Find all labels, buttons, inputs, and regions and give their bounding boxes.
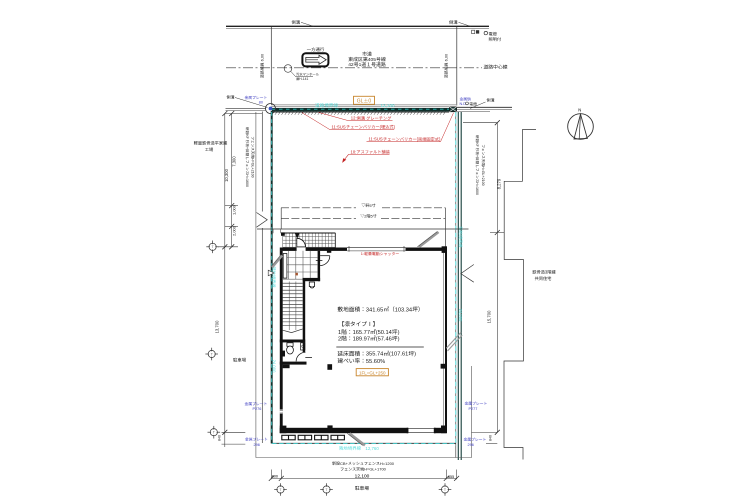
svg-text:405: 405 xyxy=(368,57,376,63)
svg-text:): ) xyxy=(398,330,400,336)
svg-text:1: 1 xyxy=(359,62,362,68)
svg-text:H=1200: H=1200 xyxy=(380,461,395,466)
svg-text:2,000: 2,000 xyxy=(231,225,236,236)
svg-text:T: T xyxy=(444,488,446,492)
svg-text:1:: 1: xyxy=(361,251,364,256)
svg-text:1,000: 1,000 xyxy=(231,204,236,215)
svg-text:T: T xyxy=(212,245,214,249)
svg-text:10:: 10: xyxy=(351,149,357,154)
svg-text:T: T xyxy=(211,352,213,356)
svg-text:T: T xyxy=(213,431,215,435)
svg-text:T: T xyxy=(326,488,328,492)
svg-text:+: + xyxy=(475,155,479,157)
svg-text:H=GL+2100: H=GL+2100 xyxy=(251,158,255,178)
svg-text:N.D: N.D xyxy=(460,102,467,106)
svg-text:42: 42 xyxy=(348,62,354,68)
svg-text:12,100: 12,100 xyxy=(355,474,370,480)
svg-text:): ) xyxy=(398,337,400,343)
svg-text:10,300: 10,300 xyxy=(224,168,229,181)
svg-text:): ) xyxy=(414,352,416,358)
svg-text:(57.46: (57.46 xyxy=(376,337,392,343)
svg-text:1: 1 xyxy=(338,330,341,336)
svg-text:13,700: 13,700 xyxy=(214,320,219,333)
svg-text:6,00: 6,00 xyxy=(260,53,265,62)
svg-text:H=GL+2100: H=GL+2100 xyxy=(481,166,485,186)
svg-text:296: 296 xyxy=(468,443,474,447)
svg-text:55.60%: 55.60% xyxy=(366,359,385,365)
svg-text:H=1600: H=1600 xyxy=(475,182,479,195)
svg-text:12,100: 12,100 xyxy=(381,103,395,108)
svg-text:296: 296 xyxy=(254,443,260,447)
svg-text:341.65: 341.65 xyxy=(366,307,383,313)
svg-text:P276: P276 xyxy=(253,407,262,411)
svg-text:840: 840 xyxy=(218,435,222,441)
svg-text:+: + xyxy=(245,147,249,149)
svg-text:2: 2 xyxy=(338,337,341,343)
svg-text:8,279: 8,279 xyxy=(497,178,502,189)
svg-text:H=1600: H=1600 xyxy=(245,174,249,187)
svg-text:H=GL+1700: H=GL+1700 xyxy=(364,467,387,472)
svg-text:15,700: 15,700 xyxy=(487,310,492,323)
svg-text:855: 855 xyxy=(448,475,454,479)
svg-text:CB+: CB+ xyxy=(340,461,349,466)
svg-text:840: 840 xyxy=(489,435,493,441)
svg-text:GL: GL xyxy=(357,99,364,105)
svg-text:12:: 12: xyxy=(351,116,357,121)
svg-text:KF: KF xyxy=(475,142,479,148)
svg-text:24,000: 24,000 xyxy=(271,360,276,373)
svg-text:(107.61: (107.61 xyxy=(389,352,408,358)
svg-text:7,300: 7,300 xyxy=(231,156,236,167)
svg-text:24,000: 24,000 xyxy=(458,309,463,322)
svg-text:P277: P277 xyxy=(469,407,478,411)
svg-text:12,760: 12,760 xyxy=(365,446,379,451)
svg-text:0: 0 xyxy=(368,99,371,105)
svg-text:T: T xyxy=(280,488,282,492)
svg-text:11:SUS: 11:SUS xyxy=(332,124,346,129)
svg-text:11:SUS: 11:SUS xyxy=(369,137,383,142)
svg-text:6,00: 6,00 xyxy=(444,53,449,62)
svg-text:165.77: 165.77 xyxy=(353,330,370,336)
svg-text:355.74: 355.74 xyxy=(366,352,383,358)
svg-text:103.34: 103.34 xyxy=(395,307,412,313)
svg-text:189.97: 189.97 xyxy=(353,337,370,343)
svg-text:KF: KF xyxy=(245,134,249,140)
svg-text:N: N xyxy=(578,108,581,113)
svg-text:1FL=GL+250: 1FL=GL+250 xyxy=(359,370,386,375)
svg-text:(50.14: (50.14 xyxy=(376,330,392,336)
svg-text:80: 80 xyxy=(259,101,263,105)
svg-text:H-141: H-141 xyxy=(299,77,308,81)
svg-text:800: 800 xyxy=(272,474,278,478)
